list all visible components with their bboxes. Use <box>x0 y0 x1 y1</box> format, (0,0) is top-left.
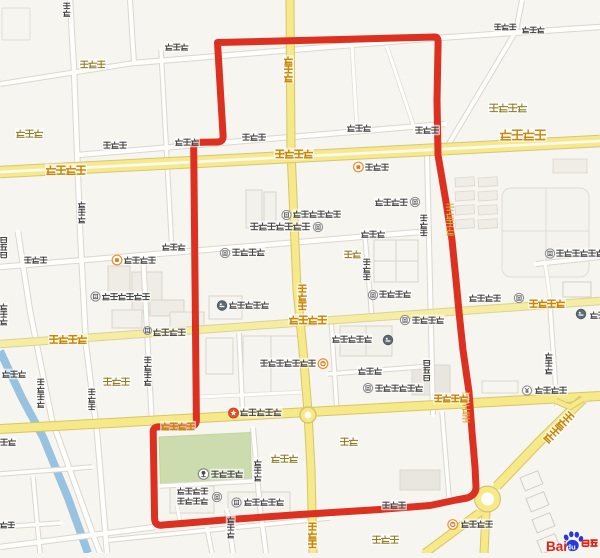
svg-text:Bai: Bai <box>546 539 567 553</box>
svg-text:du: du <box>567 543 577 552</box>
